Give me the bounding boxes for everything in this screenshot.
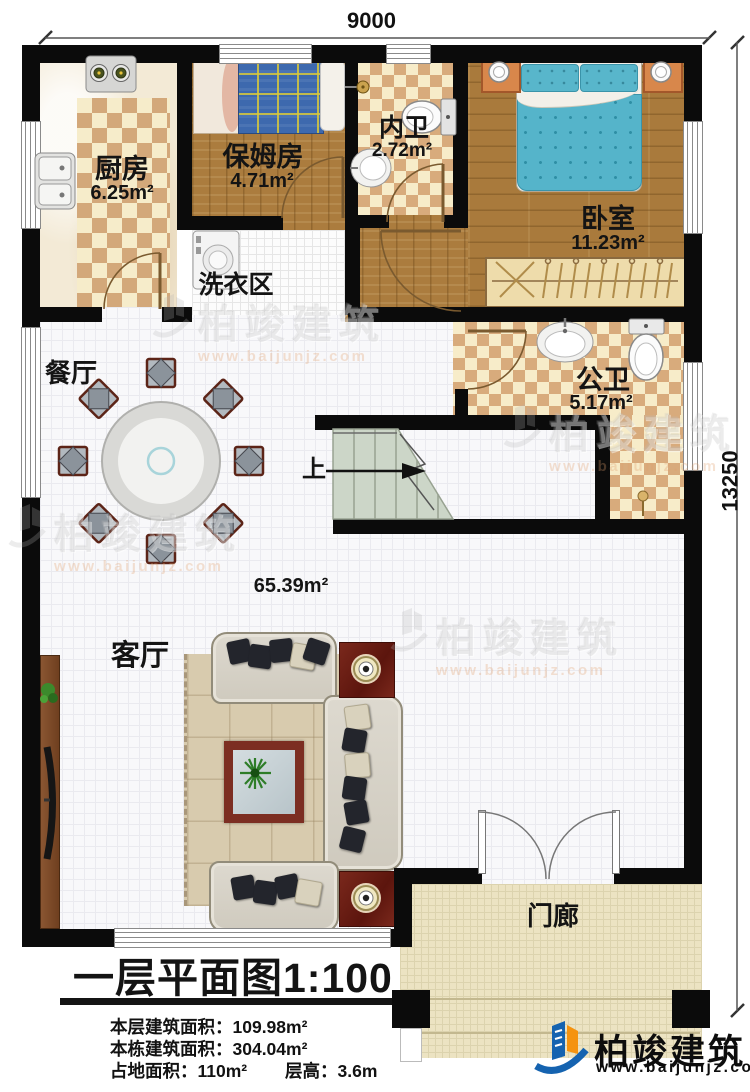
porch-column-right — [672, 990, 710, 1028]
window — [22, 328, 40, 497]
dimension-height: 13250 — [718, 450, 744, 511]
wall-innerbath-bottom — [444, 215, 468, 228]
wall-stairs-top — [315, 415, 608, 430]
stat-value: 3.6m — [338, 1061, 378, 1081]
stat-label: 占地面积： — [110, 1061, 198, 1081]
wall-porch-left — [394, 868, 482, 884]
brand-url: www.baijunjz.com — [596, 1059, 750, 1077]
room-area-public-bath: 5.17m² — [569, 393, 632, 414]
wardrobe — [485, 257, 688, 308]
window — [387, 45, 430, 63]
stairs-up-label: 上 — [302, 457, 326, 482]
room-area-inner-bath: 2.72m² — [372, 141, 432, 161]
porch-door-leaf — [478, 810, 486, 874]
room-area-nanny: 4.71m² — [230, 171, 293, 192]
wall-stairs-bottom — [333, 519, 702, 534]
stat-label: 本栋建筑面积： — [110, 1039, 233, 1059]
wall-innerbath-bottom — [345, 215, 389, 228]
wall-kitchen-bottom — [162, 307, 192, 322]
wall-kitchen-bottom — [40, 307, 102, 322]
pillow — [341, 727, 368, 754]
room-area-bedroom: 11.23m² — [571, 233, 644, 254]
dimension-width: 9000 — [347, 8, 396, 34]
wall-publicbath-stub — [455, 389, 468, 417]
window — [220, 45, 311, 63]
stat-height: 层高：3.6m — [285, 1058, 377, 1083]
wall-nanny-bath — [345, 63, 358, 216]
stat-value: 110m² — [198, 1061, 248, 1081]
nanny-bed-pillow — [320, 60, 345, 131]
wall-laundry-hall — [345, 216, 360, 315]
tv-cabinet — [40, 655, 60, 929]
wall-hall-bottom — [348, 307, 468, 322]
wall-nanny-bottom — [177, 216, 283, 230]
public-bath-floor-ext — [608, 415, 684, 519]
room-label-inner-bath: 内卫 — [379, 115, 429, 141]
bed-pillow — [580, 64, 638, 92]
page-title: 一层平面图1:100 — [73, 944, 393, 1004]
wall-porch-right — [614, 868, 702, 884]
wall-innerbath-bedroom — [453, 63, 468, 215]
room-label-kitchen: 厨房 — [95, 155, 149, 183]
room-label-dining: 餐厅 — [45, 360, 97, 387]
room-label-living: 客厅 — [111, 641, 169, 671]
stat-value: 109.98m² — [233, 1017, 308, 1037]
room-label-nanny: 保姆房 — [223, 143, 304, 171]
floor-plan: 柏竣建筑 www.baijunjz.com 柏竣建筑 www.baijunjz.… — [0, 0, 750, 1092]
brand-logo-icon — [532, 1018, 590, 1080]
bed-blanket — [517, 94, 642, 191]
wall-bedroom-bottom — [453, 307, 684, 322]
pillow — [344, 752, 371, 779]
nanny-bed-plaid — [238, 57, 324, 134]
wall-top — [22, 45, 702, 63]
living-area-value: 65.39m² — [254, 576, 329, 597]
stat-footprint: 占地面积：110m² — [110, 1058, 247, 1083]
wall-kitchen-nanny — [177, 63, 192, 225]
pillow — [342, 776, 368, 802]
window — [22, 122, 40, 228]
window — [684, 122, 702, 233]
porch-step — [400, 1028, 422, 1062]
stat-value: 304.04m² — [233, 1039, 308, 1059]
room-area-kitchen: 6.25m² — [90, 183, 153, 204]
room-label-laundry: 洗衣区 — [198, 272, 273, 298]
room-label-bedroom: 卧室 — [581, 205, 635, 233]
end-table-top — [339, 642, 395, 698]
porch-column-left — [392, 990, 430, 1028]
end-table-bottom — [339, 871, 395, 927]
porch-step-line — [402, 998, 700, 1000]
bed-pillow — [521, 64, 579, 92]
room-label-public-bath: 公卫 — [576, 366, 630, 394]
wall-stairs-divider — [595, 415, 610, 534]
stat-label: 本层建筑面积： — [110, 1017, 233, 1037]
coffee-table — [224, 741, 304, 823]
title-underline — [60, 998, 392, 1005]
room-label-porch: 门廊 — [527, 903, 579, 930]
pillow — [294, 878, 323, 907]
pillow — [343, 799, 370, 826]
porch-door-leaf — [612, 810, 620, 874]
window — [684, 363, 702, 470]
stat-label: 层高： — [285, 1061, 338, 1081]
